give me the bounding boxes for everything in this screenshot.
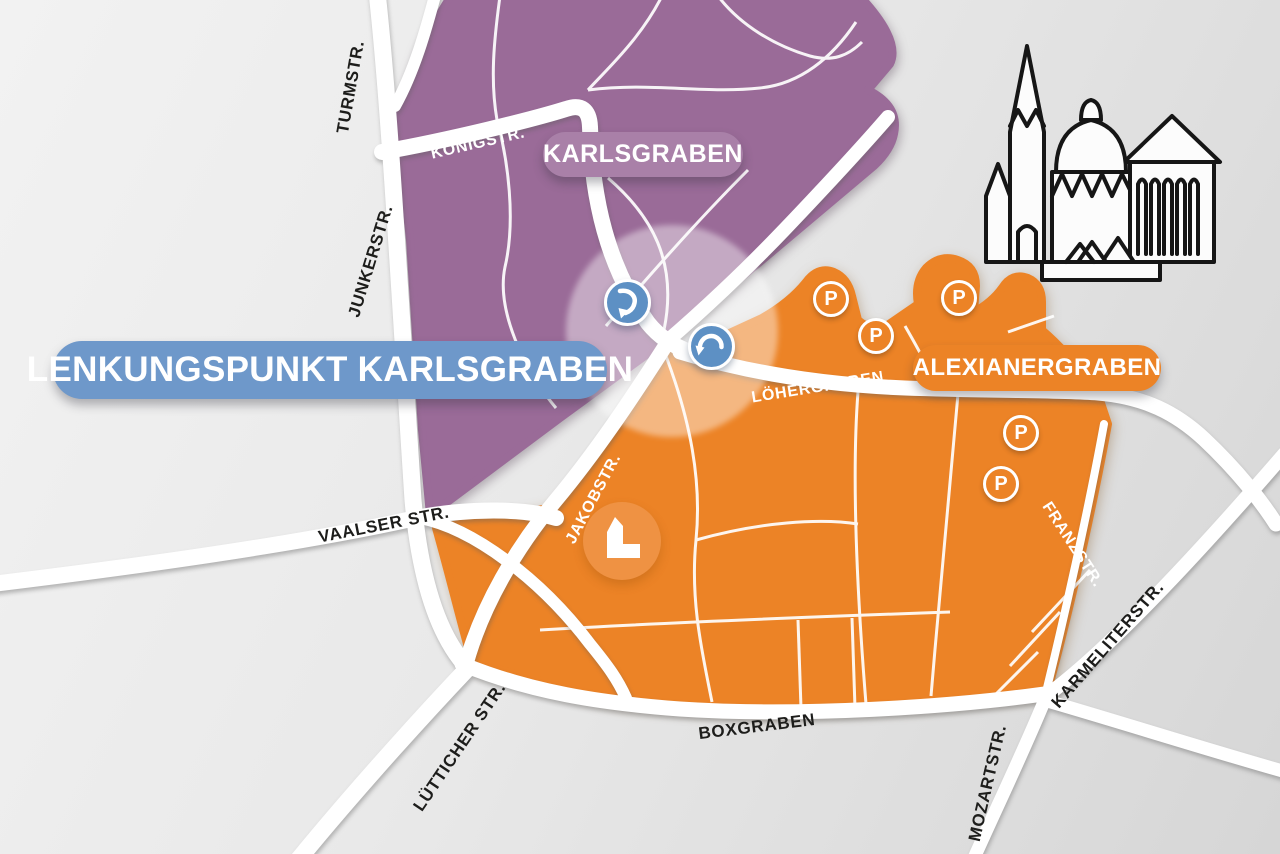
parking-icon: P [1003,415,1039,451]
map-canvas: P P P P P TURMSTR. JUNKERSTR. KÖNIGSTR. … [0,0,1280,854]
zone-pill-karlsgraben: KARLSGRABEN [543,132,743,177]
zone-pill-alexianergraben: ALEXIANERGRABEN [913,345,1161,391]
road-karmeliter-east [1044,700,1280,772]
aachen-cathedral-icon [986,46,1220,280]
parking-icon: P [858,318,894,354]
parking-letter: P [1014,422,1027,445]
turn-marker-south [688,323,735,370]
turn-marker-north [604,279,651,326]
zone-pill-alexianergraben-label: ALEXIANERGRABEN [913,354,1162,382]
parking-letter: P [824,288,837,311]
map-vector-layer [0,0,1280,854]
parking-icon: P [983,466,1019,502]
curved-arrow-right-down-icon [607,282,647,322]
parking-letter: P [994,473,1007,496]
parking-icon: P [813,281,849,317]
zone-pill-karlsgraben-label: KARLSGRABEN [543,140,743,169]
guidance-point-halo [566,225,778,437]
guidance-point-title: LENKUNGSPUNKT KARLSGRABEN [53,341,607,399]
parking-icon: P [941,280,977,316]
guidance-point-title-label: LENKUNGSPUNKT KARLSGRABEN [27,350,633,390]
parking-letter: P [952,287,965,310]
parking-letter: P [869,325,882,348]
curved-arrow-left-down-icon [691,326,731,366]
